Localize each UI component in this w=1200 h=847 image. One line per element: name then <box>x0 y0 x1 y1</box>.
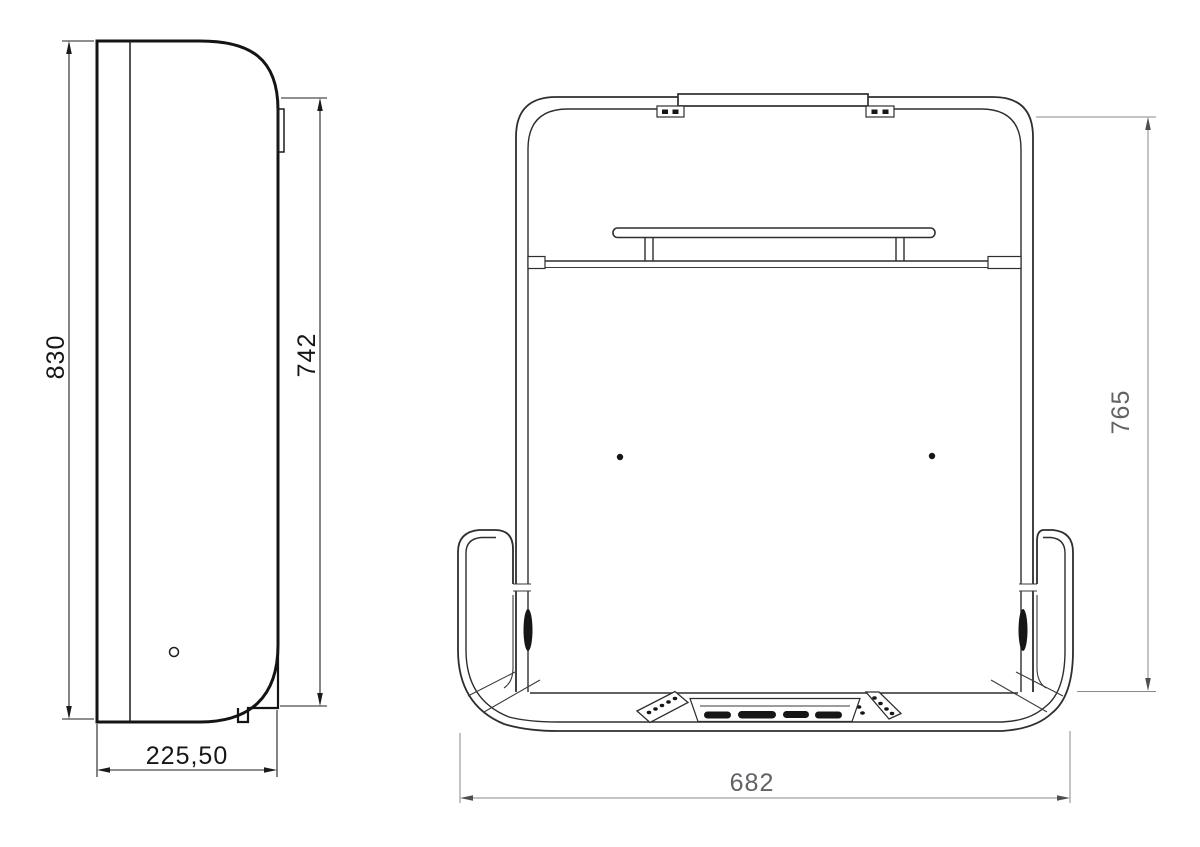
front-height-dimension-label: 765 <box>1107 390 1135 435</box>
pivot-pin-icon <box>524 609 533 651</box>
dim-682-arrow-right <box>1057 795 1070 801</box>
strip-hole <box>884 707 889 710</box>
dim-742-arrow-bottom <box>317 693 323 706</box>
corner-fold-lines-left <box>468 672 540 712</box>
screw-icon <box>617 454 623 460</box>
strip-hole <box>666 700 671 703</box>
folded-panel-top-edge <box>678 94 868 106</box>
strip-hole <box>878 702 883 705</box>
front-view: 765 682 <box>458 92 1156 803</box>
latch-slot <box>704 712 731 719</box>
strip-hole <box>872 696 877 699</box>
side-screw-hole <box>170 648 179 657</box>
strip-hole <box>860 711 865 715</box>
strip-hole <box>653 707 658 710</box>
dim-765-arrow-bottom <box>1145 678 1151 691</box>
dim-765-arrow-top <box>1145 117 1151 130</box>
frame-inner-tube <box>528 109 1021 692</box>
shelf-bracket-left <box>528 257 545 269</box>
dim-830-arrow-bottom <box>66 706 72 719</box>
dim-225-arrow-left <box>97 767 110 773</box>
dim-225-arrow-right <box>264 767 277 773</box>
tube-joint-mask-right <box>1020 584 1036 592</box>
handle-rail-legs <box>645 237 904 261</box>
strip-hole <box>673 697 678 700</box>
pivot-pin-icon <box>1019 609 1028 651</box>
tube-joint-mask-left <box>514 584 530 592</box>
screw-icon <box>929 453 935 459</box>
dim-830-arrow-top <box>66 41 72 54</box>
strip-hole <box>660 704 665 707</box>
front-width-dimension-label: 682 <box>730 769 775 797</box>
dim-682-arrow-left <box>460 795 473 801</box>
top-hinge-right <box>866 106 894 117</box>
latch-slot <box>738 711 776 719</box>
latch-slot <box>815 712 842 719</box>
frame-outer-tube <box>516 97 1033 692</box>
dim-742-lines <box>280 98 327 706</box>
folding-leg-strip-right <box>866 692 901 719</box>
bracket-inner-contour <box>466 538 1065 723</box>
side-front-height-dimension-label: 742 <box>293 333 321 378</box>
side-profile-outline <box>97 41 278 722</box>
dim-742-arrow-top <box>317 98 323 111</box>
bracket-plate-edge-right <box>1037 595 1046 688</box>
technical-drawing: 830 742 225,50 <box>0 0 1200 847</box>
hinge-pin-icon <box>662 110 668 115</box>
handle-rail <box>613 228 935 238</box>
technical-drawing-canvas: 830 742 225,50 <box>0 0 1200 847</box>
front-view-frame <box>513 92 1037 692</box>
strip-hole <box>890 712 895 715</box>
side-depth-dimension-label: 225,50 <box>146 742 228 770</box>
dim-765-lines <box>1036 117 1156 692</box>
corner-fold-lines-right <box>991 672 1063 712</box>
hinge-pin-icon <box>673 110 679 115</box>
side-height-dimension-label: 830 <box>42 335 70 380</box>
hinge-pin-icon <box>883 110 889 115</box>
hinge-pin-icon <box>872 110 878 115</box>
front-view-brackets <box>458 530 1073 731</box>
side-view: 830 742 225,50 <box>42 41 327 777</box>
strip-hole <box>647 711 652 714</box>
side-view-outline <box>97 41 284 722</box>
latch-slot <box>783 711 809 718</box>
top-hinge-left <box>657 106 684 117</box>
shelf-bracket-right <box>988 257 1021 269</box>
